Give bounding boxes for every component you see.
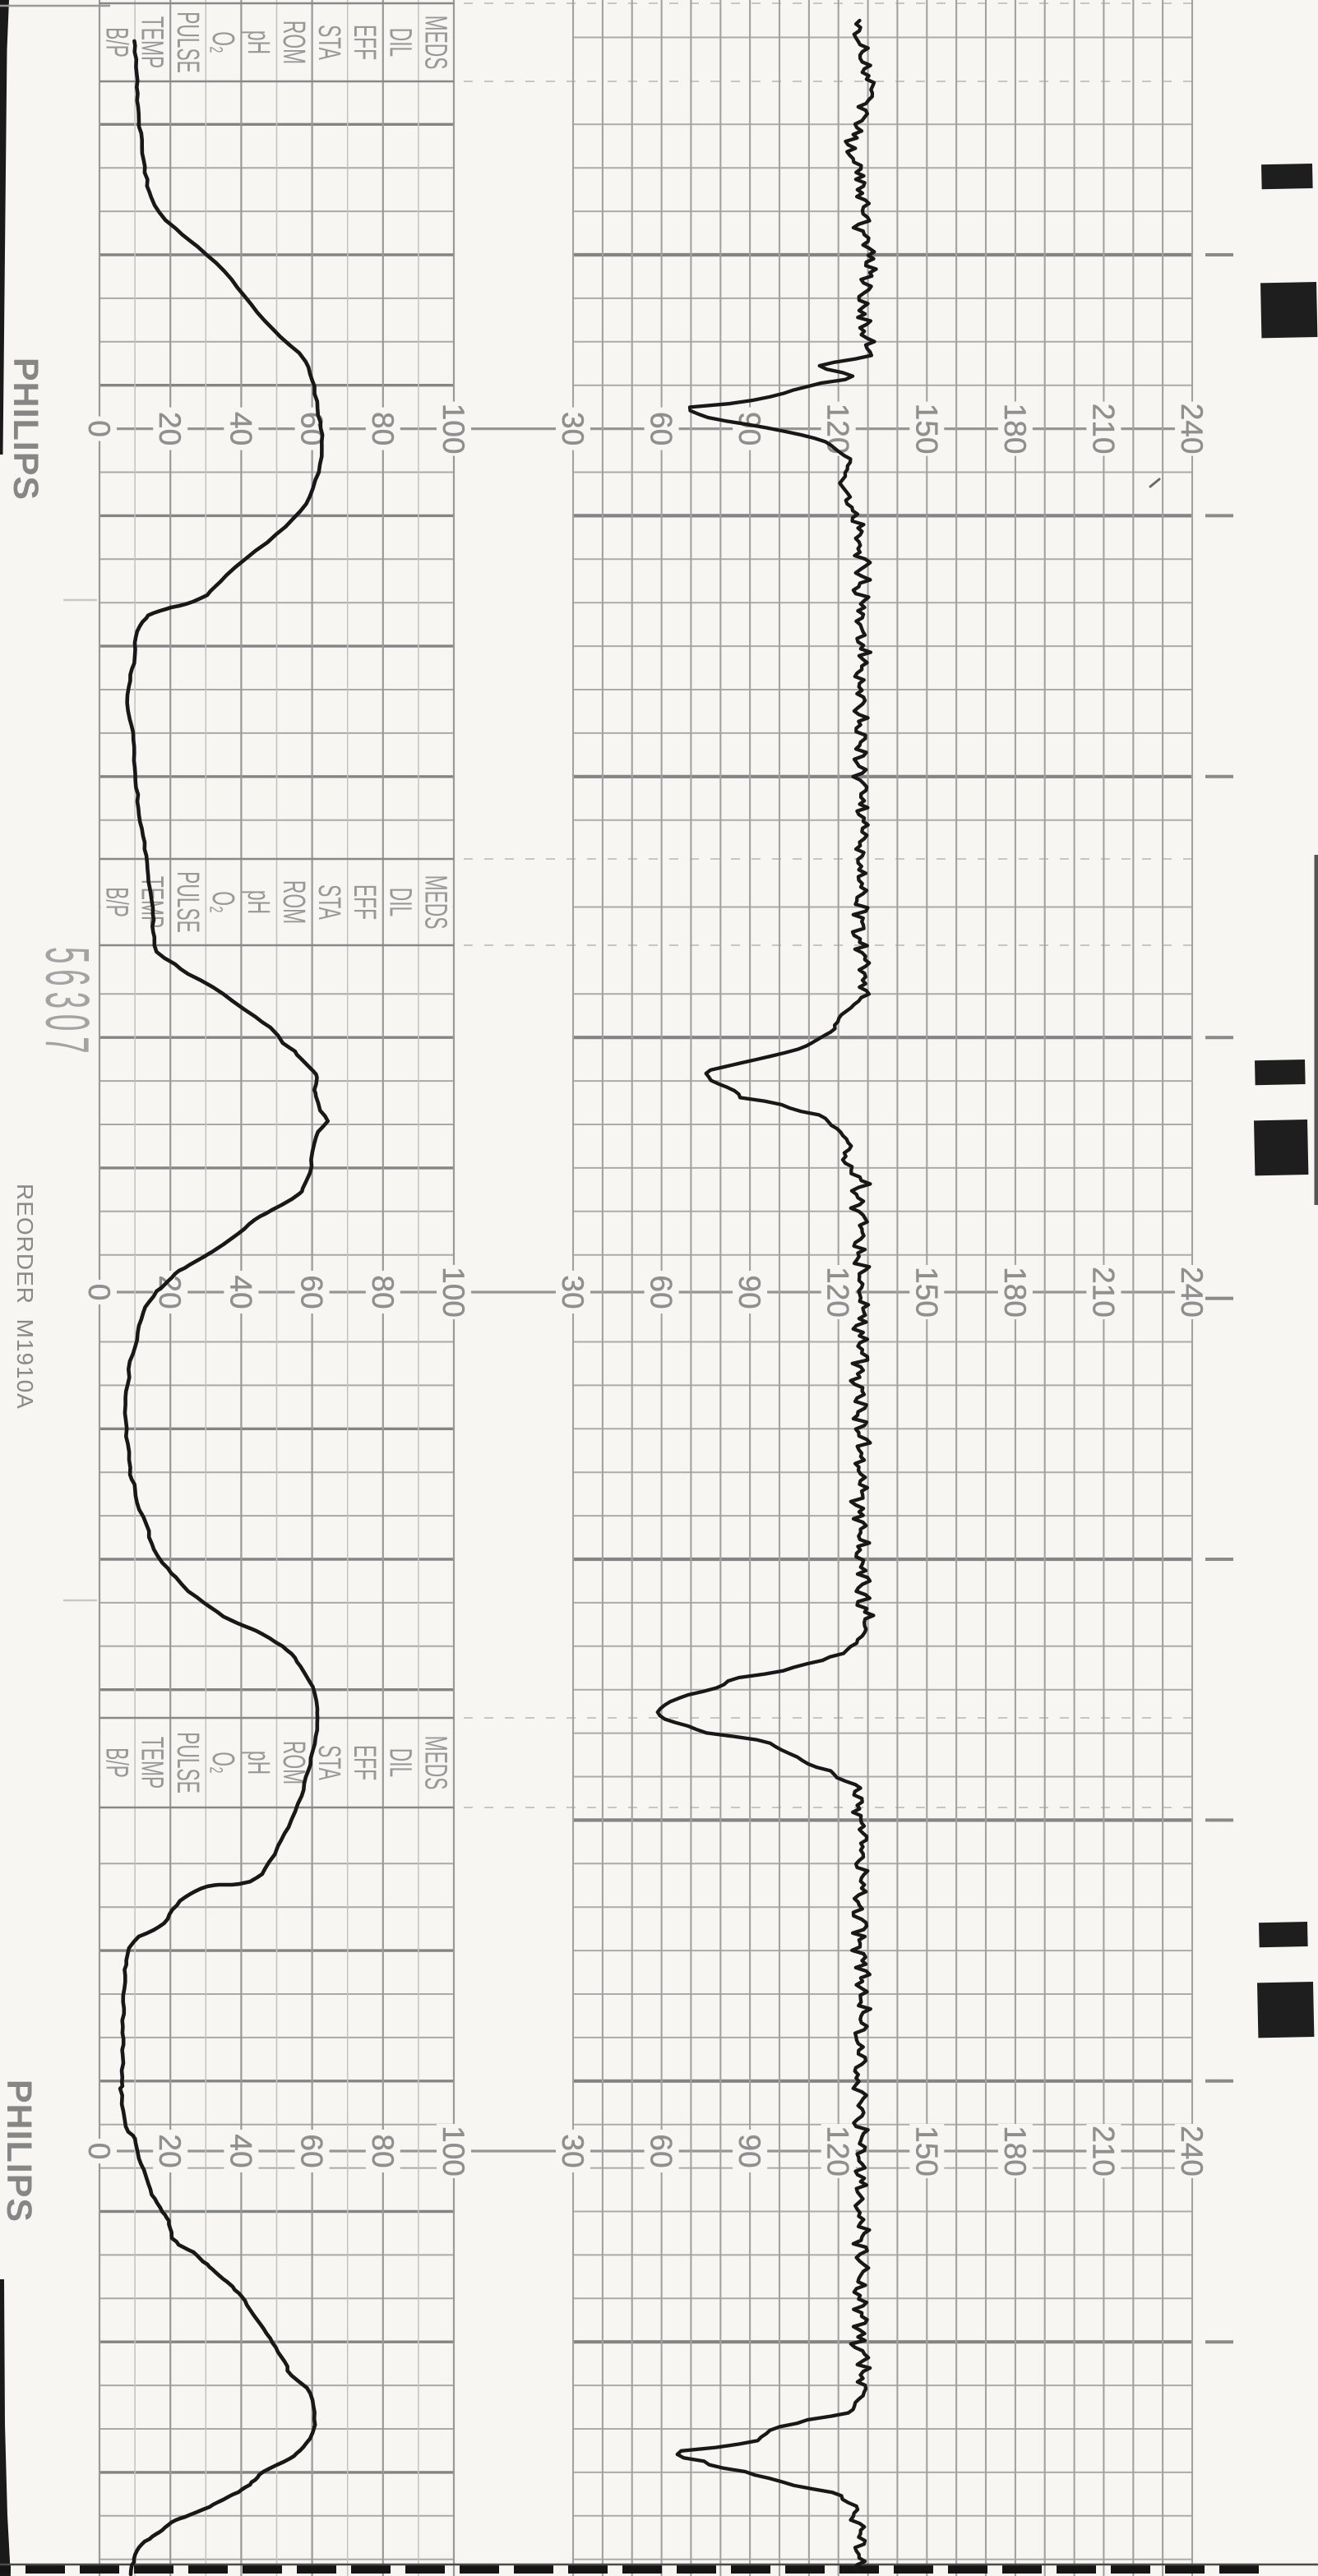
svg-text:0: 0 <box>82 2143 116 2160</box>
svg-text:STA: STA <box>312 884 347 920</box>
svg-text:100: 100 <box>437 404 470 455</box>
svg-text:pH: pH <box>242 1751 276 1775</box>
svg-text:80: 80 <box>366 1275 400 1309</box>
svg-text:240: 240 <box>1175 404 1209 455</box>
svg-text:B/P: B/P <box>99 27 134 58</box>
svg-text:210: 210 <box>1086 1267 1120 1318</box>
svg-text:PULSE: PULSE <box>170 1732 205 1794</box>
svg-text:MEDS: MEDS <box>419 875 453 930</box>
svg-text:60: 60 <box>295 2134 329 2167</box>
svg-text:56307: 56307 <box>32 947 101 1059</box>
svg-text:100: 100 <box>437 2126 470 2177</box>
svg-text:PULSE: PULSE <box>170 871 205 933</box>
svg-text:O₂: O₂ <box>206 891 240 913</box>
svg-text:90: 90 <box>733 412 766 445</box>
svg-text:210: 210 <box>1086 404 1120 455</box>
svg-text:DIL: DIL <box>383 1748 418 1777</box>
svg-text:80: 80 <box>366 412 400 445</box>
svg-text:20: 20 <box>153 412 187 445</box>
svg-text:120: 120 <box>821 404 855 455</box>
svg-text:DIL: DIL <box>383 28 418 57</box>
svg-text:0: 0 <box>82 420 116 437</box>
svg-text:ROM: ROM <box>277 21 312 64</box>
svg-text:TEMP: TEMP <box>135 1737 169 1789</box>
svg-text:O₂: O₂ <box>206 1752 240 1774</box>
svg-text:40: 40 <box>224 412 257 445</box>
svg-text:STA: STA <box>312 25 347 60</box>
svg-text:60: 60 <box>295 1275 329 1309</box>
svg-text:180: 180 <box>998 404 1032 455</box>
svg-text:150: 150 <box>909 1267 943 1318</box>
svg-text:210: 210 <box>1086 2126 1120 2177</box>
svg-text:PHILIPS: PHILIPS <box>0 2080 39 2223</box>
svg-text:O₂: O₂ <box>206 31 240 53</box>
svg-text:180: 180 <box>998 2126 1032 2177</box>
svg-text:DIL: DIL <box>383 888 418 916</box>
svg-text:EFF: EFF <box>348 25 382 60</box>
svg-text:PULSE: PULSE <box>170 12 205 73</box>
svg-text:80: 80 <box>366 2134 400 2167</box>
svg-text:pH: pH <box>242 890 276 914</box>
svg-text:30: 30 <box>556 1275 590 1309</box>
svg-text:PHILIPS: PHILIPS <box>6 358 45 501</box>
svg-text:240: 240 <box>1175 2126 1209 2177</box>
svg-text:MEDS: MEDS <box>419 16 453 70</box>
svg-text:120: 120 <box>821 1267 855 1318</box>
svg-text:60: 60 <box>645 2134 678 2167</box>
svg-text:150: 150 <box>909 404 943 455</box>
svg-text:60: 60 <box>645 412 678 445</box>
svg-text:40: 40 <box>224 1275 257 1309</box>
svg-text:ROM: ROM <box>277 880 312 924</box>
svg-text:0: 0 <box>82 1284 116 1301</box>
svg-text:STA: STA <box>312 1745 347 1780</box>
svg-text:150: 150 <box>909 2126 943 2177</box>
svg-text:B/P: B/P <box>99 887 134 917</box>
svg-text:60: 60 <box>645 1275 678 1309</box>
svg-text:pH: pH <box>242 30 276 54</box>
svg-text:180: 180 <box>998 1267 1032 1318</box>
svg-text:30: 30 <box>556 412 590 445</box>
svg-text:EFF: EFF <box>348 884 382 920</box>
svg-text:20: 20 <box>153 2134 187 2167</box>
svg-text:TEMP: TEMP <box>135 16 169 68</box>
svg-text:120: 120 <box>821 2126 855 2177</box>
svg-text:B/P: B/P <box>99 1747 134 1778</box>
svg-text:40: 40 <box>224 2134 257 2167</box>
svg-text:30: 30 <box>556 2134 590 2167</box>
svg-text:REORDER M1910A: REORDER M1910A <box>12 1184 38 1410</box>
svg-text:240: 240 <box>1175 1267 1209 1318</box>
svg-text:100: 100 <box>437 1267 470 1318</box>
svg-text:90: 90 <box>733 1275 766 1309</box>
svg-text:EFF: EFF <box>348 1745 382 1780</box>
svg-text:90: 90 <box>733 2134 766 2167</box>
svg-text:MEDS: MEDS <box>419 1736 453 1790</box>
